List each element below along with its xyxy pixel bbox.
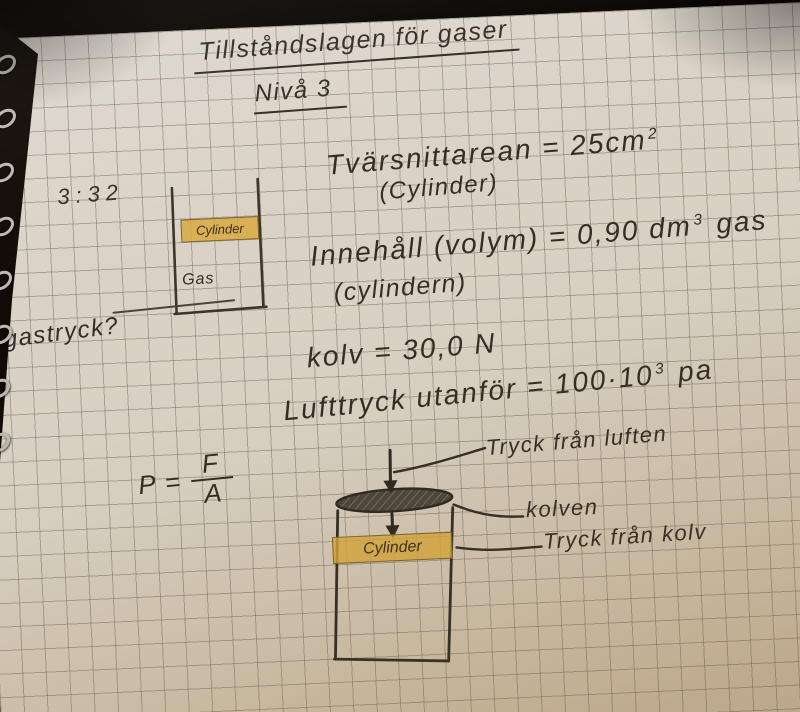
large-cylinder-highlight-label: Cylinder	[332, 532, 453, 564]
kolven-label-line	[454, 501, 524, 519]
volume-exponent: 3	[693, 211, 703, 229]
formula-denominator: A	[203, 479, 224, 508]
formula-lhs: P =	[137, 467, 183, 501]
kolv-label-line	[457, 544, 542, 552]
formula-fraction: F A	[189, 448, 236, 509]
air-pressure-unit: pa	[676, 353, 714, 387]
notebook-paper: Tillståndslagen för gaser Nivå 3 Tvärsni…	[0, 1, 800, 712]
photo-background: Tillståndslagen för gaser Nivå 3 Tvärsni…	[0, 0, 800, 712]
pressure-formula: P = F A	[136, 448, 236, 515]
problem-number: 3:32	[56, 179, 125, 210]
gas-label: Gas	[182, 270, 215, 290]
area-exponent: 2	[647, 125, 657, 143]
small-cylinder-outline	[169, 179, 267, 314]
small-cylinder-highlight-label: Cylinder	[180, 216, 259, 243]
air-pressure-exponent: 3	[654, 360, 664, 378]
formula-numerator: F	[189, 448, 233, 482]
level-heading: Nivå 3	[252, 74, 347, 114]
piston-hatched-ellipse	[336, 486, 453, 515]
volume-unit: gas	[715, 204, 768, 239]
piston-label: kolven	[525, 494, 599, 523]
air-label-line	[393, 448, 486, 472]
